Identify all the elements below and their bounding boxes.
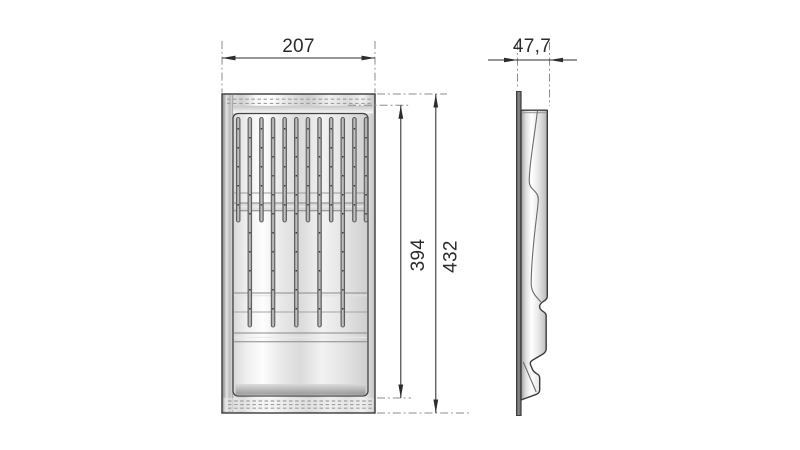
slot-pin-dot: [330, 147, 332, 149]
slot-pin-dot: [284, 147, 286, 149]
slot-pin-dot: [296, 308, 298, 310]
slot-pin-dot: [319, 251, 321, 253]
slot-pin-dot: [272, 232, 274, 234]
slot-pin-dot: [284, 185, 286, 187]
knife-slot-long: [248, 118, 252, 328]
front-bottom-edge-band: [236, 384, 366, 395]
dimension-label-width: 207: [282, 36, 315, 57]
knife-slot-short: [329, 118, 333, 223]
slot-pin-dot: [249, 213, 251, 215]
slot-pin-dot: [342, 308, 344, 310]
slot-pin-dot: [319, 270, 321, 272]
slot-pin-dot: [319, 213, 321, 215]
slot-pin-dot: [319, 156, 321, 158]
slot-pin-dot: [272, 213, 274, 215]
knife-slot-short: [364, 118, 368, 223]
knife-slot-short: [236, 118, 240, 223]
front-insert-panel: [233, 114, 368, 397]
slot-pin-dot: [342, 232, 344, 234]
slot-pin-dot: [237, 166, 239, 168]
slot-pin-dot: [330, 204, 332, 206]
slot-pin-dot: [319, 232, 321, 234]
slot-pin-dot: [296, 270, 298, 272]
slot-pin-dot: [249, 232, 251, 234]
slot-pin-dot: [249, 137, 251, 139]
drawing-canvas: 207 394 432 47,7: [0, 0, 800, 450]
knife-slot-long: [295, 118, 299, 328]
slot-pin-dot: [284, 128, 286, 130]
slot-pin-dot: [272, 137, 274, 139]
knife-slot-short: [283, 118, 287, 223]
slot-pin-dot: [296, 175, 298, 177]
slot-pin-dot: [330, 128, 332, 130]
knife-slot-short: [353, 118, 357, 223]
knife-slot-long: [318, 118, 322, 328]
slot-pin-dot: [319, 308, 321, 310]
side-view: [517, 92, 548, 416]
arrowhead-right: [362, 56, 376, 61]
slot-pin-dot: [319, 194, 321, 196]
slot-pin-dot: [354, 185, 356, 187]
slot-pin-dot: [261, 204, 263, 206]
slot-pin-dot: [272, 194, 274, 196]
slot-pin-dot: [296, 137, 298, 139]
slot-pin-dot: [237, 128, 239, 130]
arrowhead-up: [398, 105, 403, 119]
slot-pin-dot: [296, 213, 298, 215]
front-top-shine-band: [233, 106, 373, 114]
slot-pin-dot: [261, 166, 263, 168]
slot-pin-dot: [272, 308, 274, 310]
slot-pin-dot: [342, 156, 344, 158]
slot-pin-dot: [272, 270, 274, 272]
knife-slot-long: [341, 118, 345, 328]
front-view: [222, 94, 375, 413]
slot-pin-dot: [284, 204, 286, 206]
slot-pin-dot: [249, 270, 251, 272]
arrowhead-inward-right: [550, 58, 564, 63]
slot-pin-dot: [319, 137, 321, 139]
front-bottom-rim: [224, 398, 374, 412]
slot-pin-dot: [296, 156, 298, 158]
technical-drawing: 207 394 432 47,7: [0, 0, 800, 450]
arrowhead-down: [433, 400, 438, 414]
slot-pin-dot: [354, 204, 356, 206]
knife-slot-short: [306, 118, 310, 223]
slot-pin-dot: [330, 185, 332, 187]
slot-pin-dot: [365, 175, 367, 177]
slot-pin-dot: [249, 289, 251, 291]
knife-slot-long: [271, 118, 275, 328]
slot-pin-dot: [272, 251, 274, 253]
slot-pin-dot: [307, 147, 309, 149]
slot-pin-dot: [249, 251, 251, 253]
slot-pin-dot: [319, 175, 321, 177]
slot-pin-dot: [330, 166, 332, 168]
slot-pin-dot: [261, 147, 263, 149]
slot-pin-dot: [342, 175, 344, 177]
slot-pin-dot: [249, 194, 251, 196]
slot-pin-dot: [307, 128, 309, 130]
slot-pin-dot: [237, 185, 239, 187]
slot-pin-dot: [249, 308, 251, 310]
slot-pin-dot: [342, 289, 344, 291]
slot-pin-dot: [365, 194, 367, 196]
slot-pin-dot: [342, 194, 344, 196]
dimension-label-inner-height: 394: [408, 239, 429, 272]
dimension-side-depth: 47,7: [488, 36, 577, 106]
slot-pin-dot: [272, 156, 274, 158]
slot-pin-dot: [272, 289, 274, 291]
slot-pin-dot: [342, 137, 344, 139]
dimension-label-depth: 47,7: [513, 36, 551, 57]
slot-pin-dot: [237, 147, 239, 149]
slot-pin-dot: [354, 147, 356, 149]
slot-pin-dot: [365, 137, 367, 139]
arrowhead-down: [398, 385, 403, 399]
slot-pin-dot: [354, 166, 356, 168]
slot-pin-dot: [342, 251, 344, 253]
dimension-label-outer-height: 432: [441, 240, 462, 273]
slot-pin-dot: [342, 213, 344, 215]
knife-slot-short: [260, 118, 264, 223]
slot-pin-dot: [307, 166, 309, 168]
slot-pin-dot: [261, 128, 263, 130]
arrowhead-inward-left: [504, 58, 518, 63]
slot-pin-dot: [237, 204, 239, 206]
slot-pin-dot: [284, 166, 286, 168]
slot-pin-dot: [296, 194, 298, 196]
slot-pin-dot: [272, 175, 274, 177]
arrowhead-up: [433, 94, 438, 108]
slot-pin-dot: [342, 270, 344, 272]
slot-pin-dot: [249, 156, 251, 158]
side-profile-silhouette: [521, 110, 547, 400]
slot-pin-dot: [261, 185, 263, 187]
slot-pin-dot: [307, 185, 309, 187]
slot-pin-dot: [365, 156, 367, 158]
slot-pin-dot: [249, 175, 251, 177]
slot-pin-dot: [354, 128, 356, 130]
slot-pin-dot: [296, 251, 298, 253]
slot-pin-dot: [319, 289, 321, 291]
slot-pin-dot: [296, 232, 298, 234]
arrowhead-left: [222, 56, 236, 61]
slot-pin-dot: [365, 213, 367, 215]
dimension-front-width: 207: [222, 36, 375, 93]
slot-pin-dot: [296, 289, 298, 291]
front-left-wall-edge: [223, 95, 233, 412]
slot-pin-dot: [307, 204, 309, 206]
